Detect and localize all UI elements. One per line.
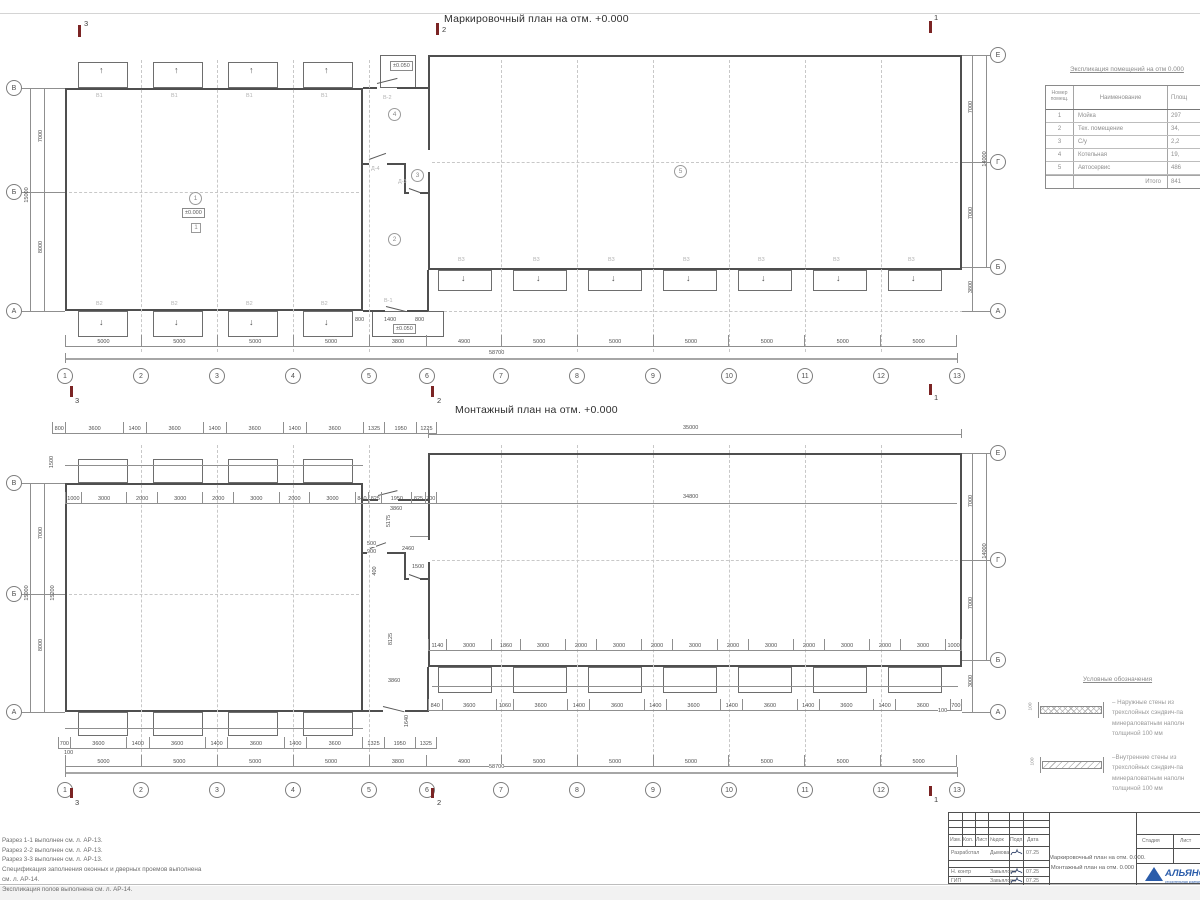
door-leaf xyxy=(409,188,421,193)
room-number: 4 xyxy=(388,108,401,121)
line xyxy=(988,813,989,846)
tb-role: ГИП xyxy=(951,878,961,884)
dim-label: 8000 xyxy=(38,232,44,262)
arrow-down-icon: ↓ xyxy=(461,274,466,283)
axis-line xyxy=(369,60,370,352)
dim-line xyxy=(437,503,957,504)
dim-segment: 840 xyxy=(428,699,442,711)
legend-title: Условные обозначения xyxy=(1083,676,1152,683)
grid-bubble: 10 xyxy=(721,782,737,798)
room-number: 1 xyxy=(189,192,202,205)
company-logo-icon xyxy=(1145,867,1163,881)
room-table-title: Экспликация помещений на отм 0.000 xyxy=(1070,66,1184,73)
section-mark-3: 3 xyxy=(75,799,79,807)
line xyxy=(949,827,1049,828)
axis-line xyxy=(577,445,578,767)
section-mark-3: 3 xyxy=(84,20,88,28)
axis-line xyxy=(653,445,654,767)
dim-segment: 5000 xyxy=(728,335,804,347)
door-opening xyxy=(426,540,430,562)
dim-label: 8000 xyxy=(38,630,44,660)
table-row: 2 Тех. помещение 34, xyxy=(1046,123,1200,136)
window-box xyxy=(78,712,128,736)
room-name: Автосервис xyxy=(1074,162,1168,174)
window-box xyxy=(813,667,867,693)
grid-bubble: 13 xyxy=(949,368,965,384)
grid-bubble: А xyxy=(990,704,1006,720)
window-tag: В1 xyxy=(171,93,178,99)
total-dim: 58700 xyxy=(489,764,504,770)
note-line: Спецификация заполнения оконных и дверны… xyxy=(2,865,201,875)
window-box xyxy=(888,667,942,693)
section-mark-2: 2 xyxy=(442,26,446,34)
section-mark-2: 2 xyxy=(437,799,441,807)
drawing-sheet: { "titles": { "top_plan": "Маркировочный… xyxy=(0,0,1200,900)
axis-line xyxy=(881,445,882,767)
wall xyxy=(407,310,428,312)
axis-line xyxy=(805,445,806,767)
room-area: 34, xyxy=(1168,123,1200,135)
window-box xyxy=(513,667,567,693)
arrow-down-icon: ↓ xyxy=(99,318,104,327)
wall xyxy=(387,163,405,165)
axis-leader xyxy=(22,712,65,713)
room-number: 5 xyxy=(674,165,687,178)
axis-leader xyxy=(962,311,990,312)
axis-leader xyxy=(962,267,990,268)
section-mark-1: 1 xyxy=(934,14,938,22)
axis-line xyxy=(293,60,294,352)
window-box xyxy=(228,712,278,736)
dim-segment: 5000 xyxy=(501,335,577,347)
title-block: Изм. Кол. Лист №док Подп. Дата Разработа… xyxy=(948,812,1200,884)
dim-tick xyxy=(65,353,66,363)
dim-segment: 5000 xyxy=(65,755,141,767)
room-num: 1 xyxy=(1046,110,1074,122)
window-box xyxy=(228,459,278,483)
room-name: Котельная xyxy=(1074,149,1168,161)
dim-segment: 5000 xyxy=(804,755,880,767)
grid-bubble: 4 xyxy=(285,368,301,384)
dim-chain: 5000500050005000380049005000500050005000… xyxy=(65,755,957,767)
door-tag: В-1 xyxy=(384,298,393,304)
grid-bubble: 10 xyxy=(721,368,737,384)
room-table-header: Номер помещ. Наименование Площ xyxy=(1046,86,1200,110)
legend-line: толщиной 100 мм xyxy=(1112,784,1184,794)
dim-segment: 5000 xyxy=(880,335,956,347)
dim-segment: 3600 xyxy=(227,737,283,749)
arrow-up-icon: ↑ xyxy=(249,66,254,75)
window-tag: В1 xyxy=(96,93,103,99)
dim-label: 900 xyxy=(367,549,376,555)
dim-label: 100 xyxy=(1029,700,1034,714)
dim-segment: 1400 xyxy=(203,422,226,434)
dim-segment: 5000 xyxy=(217,335,293,347)
dim-segment: 2000 xyxy=(279,492,310,504)
dim-segment: 1400 xyxy=(720,699,742,711)
dim-segment: 1400 xyxy=(873,699,895,711)
dim-segment: 840 xyxy=(355,492,368,504)
line xyxy=(1023,813,1024,885)
dim-segment: 1140 xyxy=(428,639,446,651)
doc-title-line2: Монтажный план на отм. 0.000 xyxy=(1049,865,1136,872)
axis-line xyxy=(729,60,730,352)
line xyxy=(1049,813,1050,885)
room-name: С/у xyxy=(1074,136,1168,148)
wall xyxy=(363,87,377,89)
dim-chain: 1000300020003000200030002000300084082519… xyxy=(65,492,437,504)
legend-line: трехслойных сэндвич-па xyxy=(1112,763,1184,773)
line xyxy=(949,846,1049,847)
grid-bubble: 9 xyxy=(645,368,661,384)
dim-label: 7000 xyxy=(968,92,974,122)
axis-leader xyxy=(22,88,65,89)
wall xyxy=(410,536,428,537)
window-box xyxy=(663,667,717,693)
dim-label: 100 xyxy=(1031,755,1036,769)
dim-segment: 3600 xyxy=(666,699,721,711)
axis-leader xyxy=(22,311,65,312)
door-leaf xyxy=(369,153,386,160)
dim-segment: 5000 xyxy=(653,755,729,767)
section-line-2 xyxy=(431,386,434,397)
dim-segment: 2000 xyxy=(641,639,672,651)
room-num: 4 xyxy=(1046,149,1074,161)
doc-title-line1: Маркировочный план на отм. 0.000. xyxy=(1049,855,1136,862)
grid-bubble: 5 xyxy=(361,368,377,384)
grid-bubble: 13 xyxy=(949,782,965,798)
dim-segment: 5000 xyxy=(293,755,369,767)
elevation-mark: ±0.050 xyxy=(390,61,413,71)
col-header-name: Наименование xyxy=(1074,86,1168,109)
grid-bubble: 5 xyxy=(361,782,377,798)
stage-label: Стадия xyxy=(1142,838,1160,844)
legend-item-text: –Внутренние стены из трехслойных сэндвич… xyxy=(1112,753,1184,795)
dim-segment: 2000 xyxy=(793,639,824,651)
dim-label: 7000 xyxy=(38,121,44,151)
grid-bubble: Б xyxy=(6,184,22,200)
grid-bubble: Е xyxy=(990,47,1006,63)
dim-segment: 1950 xyxy=(384,422,415,434)
arrow-down-icon: ↓ xyxy=(836,274,841,283)
wall xyxy=(363,710,383,712)
dim-segment: 3000 xyxy=(520,639,565,651)
room-name: Мойка xyxy=(1074,110,1168,122)
dim-chain: 7003600140036001400360014003600132519501… xyxy=(58,737,437,749)
axis-leader xyxy=(962,660,990,661)
dim-segment: 5000 xyxy=(141,335,217,347)
wall xyxy=(387,552,405,554)
dim-line xyxy=(428,434,962,435)
window-tag: В3 xyxy=(833,257,840,263)
door-leaf xyxy=(383,706,405,712)
room-number: 3 xyxy=(411,169,424,182)
dim-label: 1400 xyxy=(384,317,396,323)
table-total-row: Итого 841 xyxy=(1046,175,1200,188)
dim-segment: 3600 xyxy=(226,422,283,434)
line xyxy=(949,860,1049,861)
tb-col-data: Дата xyxy=(1027,837,1039,843)
dim-label: 800 xyxy=(415,317,424,323)
section-mark-2: 2 xyxy=(437,397,441,405)
dim-segment: 825 xyxy=(411,492,424,504)
grid-bubble: 4 xyxy=(285,782,301,798)
grid-bubble: 8 xyxy=(569,782,585,798)
dim-tick xyxy=(1038,702,1039,718)
legend-line: минераловатным наполн xyxy=(1112,719,1184,729)
grid-bubble: 8 xyxy=(569,368,585,384)
line xyxy=(949,867,1049,868)
section-line-3 xyxy=(78,25,81,37)
dim-segment: 3000 xyxy=(446,639,491,651)
dim-chain: 5000500050005000380049005000500050005000… xyxy=(65,335,957,347)
grid-bubble: 1 xyxy=(57,368,73,384)
total-label: Итого xyxy=(1074,176,1168,188)
dim-segment: 3600 xyxy=(589,699,644,711)
wall xyxy=(420,578,428,580)
axis-line xyxy=(729,445,730,767)
grid-bubble: 11 xyxy=(797,368,813,384)
tb-col-izm: Изм. xyxy=(950,837,961,843)
window-tag: В3 xyxy=(758,257,765,263)
tb-col-kol: Кол. xyxy=(963,837,973,843)
dim-segment: 5000 xyxy=(141,755,217,767)
vestibule xyxy=(380,55,416,88)
axis-line xyxy=(69,192,359,193)
window-tag: В1 xyxy=(321,93,328,99)
dim-segment: 3000 xyxy=(748,639,793,651)
dim-segment: 3600 xyxy=(742,699,797,711)
dim-segment: 3000 xyxy=(309,492,354,504)
signature-icon xyxy=(1010,867,1023,876)
dim-line xyxy=(65,772,957,774)
dim-segment: 3600 xyxy=(70,737,126,749)
dim-segment: 3600 xyxy=(513,699,568,711)
tb-col-ndok: №док xyxy=(990,837,1004,843)
door-tag: Д-4 xyxy=(371,166,380,172)
dim-label: 7000 xyxy=(968,198,974,228)
section-line-1 xyxy=(929,786,932,796)
dim-segment: 1400 xyxy=(123,422,146,434)
window-box xyxy=(78,459,128,483)
dim-segment: 800 xyxy=(52,422,65,434)
dim-segment: 3600 xyxy=(442,699,497,711)
section-line-1 xyxy=(929,384,932,395)
grid-bubble: Е xyxy=(990,445,1006,461)
notes-list: Разрез 1-1 выполнен см. л. АР-13.Разрез … xyxy=(2,836,201,894)
door-tag: Д-3 xyxy=(398,179,407,185)
arrow-up-icon: ↑ xyxy=(174,66,179,75)
dim-label: 1500 xyxy=(49,447,55,477)
dim-segment: 1000 xyxy=(65,492,81,504)
wall xyxy=(404,552,406,579)
note-line: Разрез 2-2 выполнен см. л. АР-13. xyxy=(2,846,201,856)
line xyxy=(1136,813,1137,885)
axis-leader xyxy=(962,55,990,56)
panel-line xyxy=(65,465,363,466)
dim-segment: 3600 xyxy=(819,699,874,711)
grid-bubble: 3 xyxy=(209,368,225,384)
dim-label: 7000 xyxy=(968,588,974,618)
dim-segment: 3800 xyxy=(369,755,427,767)
arrow-down-icon: ↓ xyxy=(249,318,254,327)
company-subtitle: строительная компания xyxy=(1165,880,1200,884)
dim-segment: 3000 xyxy=(81,492,126,504)
dim-chain: 8403600106036001400360014003600140036001… xyxy=(428,699,962,711)
line xyxy=(1136,834,1200,835)
dim-chain: 1140300018603000200030002000300020003000… xyxy=(428,639,962,651)
dim-label: 100 xyxy=(938,708,947,714)
dim-segment: 1400 xyxy=(205,737,228,749)
door-leaf xyxy=(409,574,421,579)
dim-segment: 3600 xyxy=(306,422,363,434)
col-header-num: Номер помещ. xyxy=(1046,86,1074,109)
tb-col-podp: Подп. xyxy=(1010,837,1024,843)
dim-segment: 2000 xyxy=(565,639,596,651)
dim-segment: 5000 xyxy=(577,755,653,767)
signature-icon xyxy=(1010,848,1023,857)
dim-segment: 5000 xyxy=(728,755,804,767)
window-tag: В2 xyxy=(246,301,253,307)
dim-label: 1640 xyxy=(404,706,410,736)
room-table-body: 1 Мойка 297 2 Тех. помещение 34, 3 С/у 2… xyxy=(1046,110,1200,175)
dim-segment: 5000 xyxy=(880,755,956,767)
dim-label: 5175 xyxy=(386,506,392,536)
note-line: Экспликация полов выполнена см. л. АР-14… xyxy=(2,885,201,895)
legend-line: минераловатным наполн xyxy=(1112,774,1184,784)
table-row: 3 С/у 2,2 xyxy=(1046,136,1200,149)
dim-tick xyxy=(428,429,429,438)
axis-line xyxy=(881,60,882,352)
wall xyxy=(363,310,385,312)
window-tag: В3 xyxy=(608,257,615,263)
axis-line xyxy=(501,445,502,767)
empty-cell xyxy=(1046,176,1074,188)
dim-segment: 1325 xyxy=(415,737,436,749)
dim-segment: 1400 xyxy=(283,422,306,434)
dim-segment: 1225 xyxy=(416,422,436,434)
grid-bubble: 12 xyxy=(873,368,889,384)
dim-segment: 1950 xyxy=(384,737,415,749)
window-tag: В2 xyxy=(171,301,178,307)
room-area: 19, xyxy=(1168,149,1200,161)
dim-line xyxy=(65,358,957,360)
axis-line xyxy=(217,60,218,352)
note-line: Разрез 1-1 выполнен см. л. АР-13. xyxy=(2,836,201,846)
dim-segment: 3000 xyxy=(672,639,717,651)
dim-segment: 700 xyxy=(950,699,961,711)
dim-tick xyxy=(961,429,962,438)
dim-label: 500 xyxy=(367,541,376,547)
dim-segment: 5000 xyxy=(804,335,880,347)
axis-leader xyxy=(22,483,65,484)
dim-segment: 1400 xyxy=(567,699,589,711)
dim-segment: 5000 xyxy=(653,335,729,347)
company-name: АЛЬЯНС xyxy=(1165,868,1200,879)
room-num: 3 xyxy=(1046,136,1074,148)
dim-label: 3000 xyxy=(968,666,974,696)
dim-tick xyxy=(1103,757,1104,773)
dim-segment: 1325 xyxy=(362,737,383,749)
arrow-down-icon: ↓ xyxy=(174,318,179,327)
arrow-down-icon: ↓ xyxy=(686,274,691,283)
dim-segment: 1060 xyxy=(496,699,513,711)
room-area: 486 xyxy=(1168,162,1200,174)
room-area: 297 xyxy=(1168,110,1200,122)
door-opening xyxy=(426,150,430,172)
dim-segment: 5000 xyxy=(577,335,653,347)
table-row: 5 Автосервис 486 xyxy=(1046,162,1200,175)
left-building-outline xyxy=(65,88,363,311)
top-plan-title: Маркировочный план на отм. +0.000 xyxy=(444,13,629,25)
dim-segment: 3000 xyxy=(596,639,641,651)
legend-line: трехслойных сэндвич-па xyxy=(1112,708,1184,718)
dim-tick xyxy=(1103,702,1104,718)
dim-label: 35000 xyxy=(683,425,698,431)
dim-segment: 3600 xyxy=(146,422,203,434)
window-tag: В2 xyxy=(321,301,328,307)
section-line-3 xyxy=(70,386,73,397)
total-dim: 58700 xyxy=(489,350,504,356)
dim-segment: 825 xyxy=(368,492,381,504)
room-number: 2 xyxy=(388,233,401,246)
room-num: 5 xyxy=(1046,162,1074,174)
section-line-3 xyxy=(70,788,73,798)
dim-segment: 1950 xyxy=(381,492,411,504)
dim-tick xyxy=(65,767,66,777)
wall xyxy=(427,270,429,312)
dim-label: 800 xyxy=(355,317,364,323)
section-mark-1: 1 xyxy=(934,394,938,402)
window-box xyxy=(438,667,492,693)
grid-bubble: Б xyxy=(6,586,22,602)
grid-bubble: 2 xyxy=(133,782,149,798)
window-box xyxy=(738,667,792,693)
room-area: 2,2 xyxy=(1168,136,1200,148)
dim-segment: 3600 xyxy=(149,737,205,749)
line xyxy=(949,834,1049,835)
grid-bubble: А xyxy=(6,303,22,319)
tb-col-list: Лист xyxy=(976,837,987,843)
tb-date: 07.25 xyxy=(1026,850,1039,856)
window-tag: В3 xyxy=(908,257,915,263)
wall xyxy=(397,87,428,89)
dim-tick xyxy=(1040,757,1041,773)
section-mark-1: 1 xyxy=(934,796,938,804)
tb-name: Дымова xyxy=(990,850,1009,856)
dim-segment: 3600 xyxy=(65,422,122,434)
window-tag: В1 xyxy=(246,93,253,99)
dim-segment: 3000 xyxy=(157,492,202,504)
dim-label: 15200 xyxy=(50,578,56,608)
room-name: Тех. помещение xyxy=(1074,123,1168,135)
dim-line xyxy=(44,483,45,712)
dim-label: 15000 xyxy=(24,180,30,210)
dim-label: 14000 xyxy=(982,536,988,566)
dim-segment: 2000 xyxy=(202,492,233,504)
legend-line: –Внутренние стены из xyxy=(1112,753,1184,763)
tb-role: Разработал xyxy=(951,850,979,856)
line xyxy=(1136,848,1200,849)
arrow-down-icon: ↓ xyxy=(536,274,541,283)
dim-line xyxy=(44,88,45,311)
wall xyxy=(420,192,428,194)
dim-segment: 2000 xyxy=(717,639,748,651)
line xyxy=(1136,863,1200,864)
arrow-down-icon: ↓ xyxy=(324,318,329,327)
window-box xyxy=(303,712,353,736)
sheet-label: Лист xyxy=(1180,838,1191,844)
